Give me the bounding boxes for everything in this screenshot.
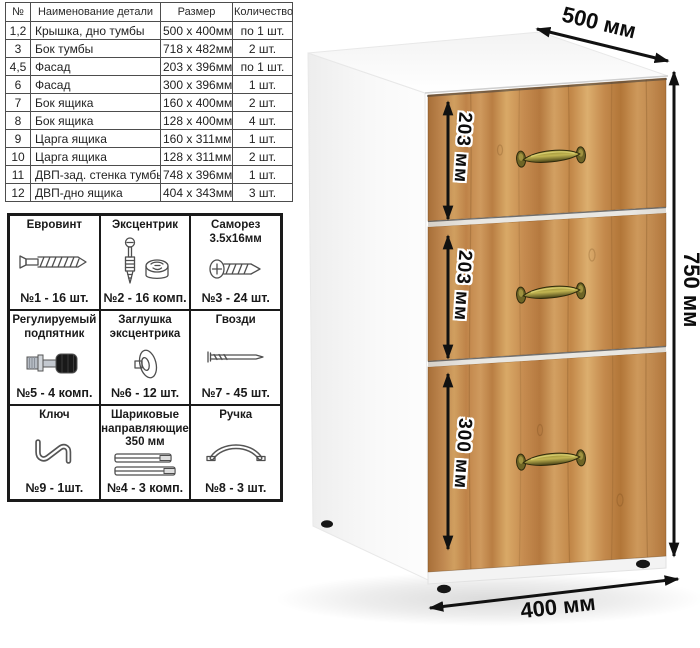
side-panel [308, 53, 428, 580]
assembly-sheet: № Наименование детали Размер Количество … [0, 0, 700, 648]
cabinet-drawing: 500 мм 750 мм 203 мм 203 мм 300 мм 400 м… [0, 0, 700, 648]
dimension-height-label: 750 мм [678, 252, 700, 327]
foot-front-left [437, 585, 451, 593]
foot-front-right [636, 560, 650, 568]
cabinet-3d-view [0, 0, 700, 648]
foot-back-left [321, 520, 333, 528]
